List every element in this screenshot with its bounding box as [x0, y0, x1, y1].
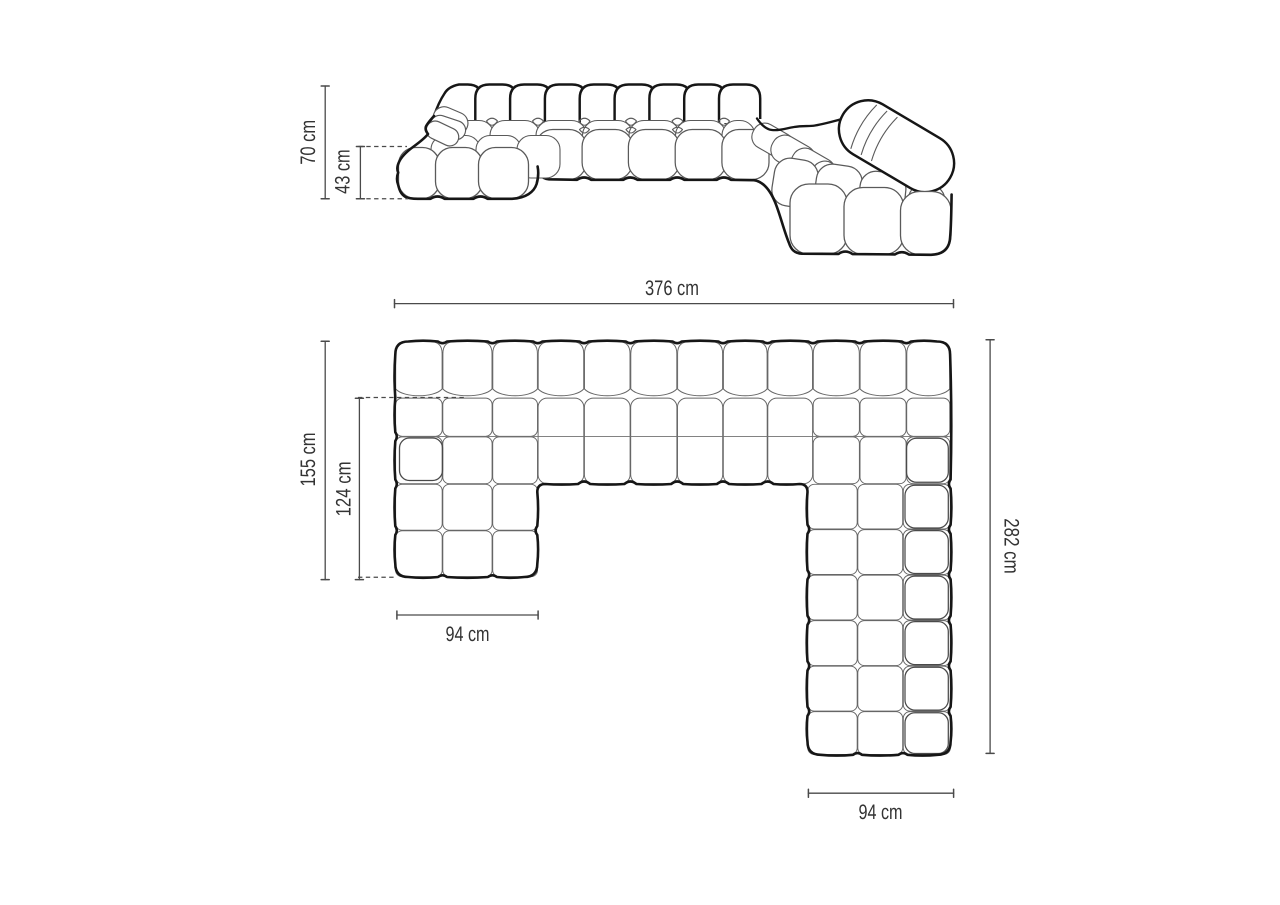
- svg-text:282 cm: 282 cm: [999, 518, 1022, 574]
- svg-text:124 cm: 124 cm: [333, 461, 356, 516]
- svg-text:43 cm: 43 cm: [332, 149, 355, 194]
- svg-text:376 cm: 376 cm: [645, 277, 699, 300]
- svg-text:155 cm: 155 cm: [297, 433, 320, 487]
- svg-text:94 cm: 94 cm: [446, 623, 490, 646]
- svg-text:70 cm: 70 cm: [297, 120, 320, 165]
- svg-text:94 cm: 94 cm: [859, 801, 903, 824]
